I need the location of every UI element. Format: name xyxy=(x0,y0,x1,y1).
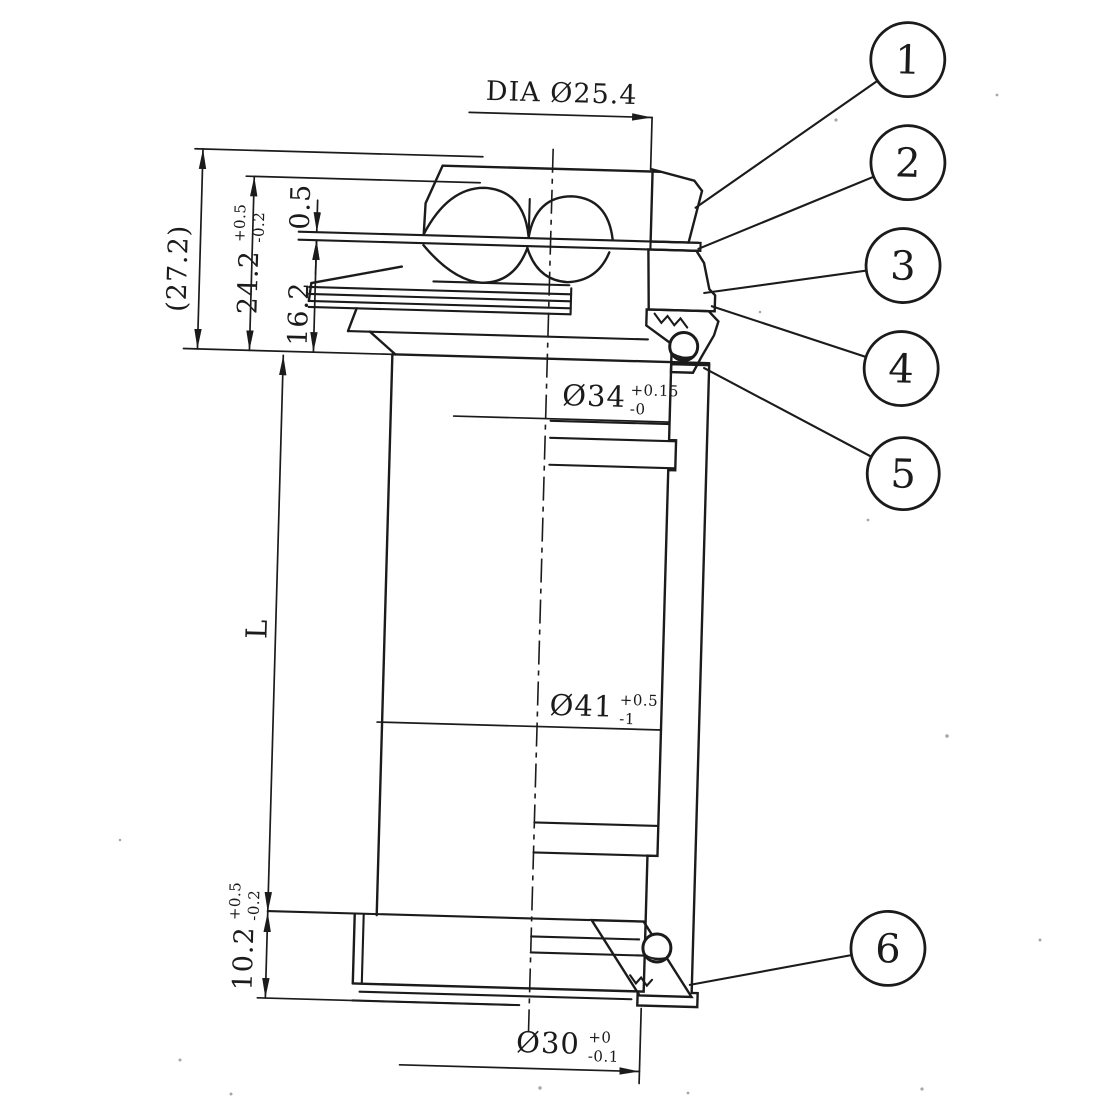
dim-bore-30-value: Ø30 xyxy=(516,1025,581,1061)
dim-bore-34-tol-plus: +0.15 xyxy=(630,381,679,400)
dim-bore-30-tol-plus: +0 xyxy=(588,1028,612,1047)
callout-balloon-4: 4 xyxy=(863,331,939,407)
dim-washer-0-5: 0.5 xyxy=(284,183,318,274)
bottom-cup-section xyxy=(590,920,694,997)
centerline xyxy=(528,149,553,1033)
hex-dome-facet-right xyxy=(529,195,614,239)
adjusting-race-flange xyxy=(307,264,649,361)
dim-dia-label: DIA Ø25.4 xyxy=(485,76,637,111)
callout-balloon-5: 5 xyxy=(866,437,940,511)
bore-step-lines xyxy=(534,421,677,856)
dim-overall-27-2: (27.2) xyxy=(160,148,482,357)
callout-number-5: 5 xyxy=(890,451,917,498)
callout-balloon-2: 2 xyxy=(870,125,946,201)
callout-number-3: 3 xyxy=(890,243,917,290)
dim-upper-stack-tol-minus: -0.2 xyxy=(249,211,268,242)
callout-balloon-1: 1 xyxy=(870,22,946,98)
dim-bore-34-value: Ø34 xyxy=(562,378,627,414)
hex-dome-facet-left xyxy=(424,186,530,237)
callout-number-6: 6 xyxy=(875,926,902,973)
dim-bore-30-tol-minus: -0.1 xyxy=(588,1047,619,1066)
dim-upper-stack-tol-plus: +0.5 xyxy=(230,203,249,242)
lower-bearing xyxy=(630,933,671,986)
lock-washer-lines xyxy=(299,232,699,251)
dim-upper-stack-24-2: 24.2 +0.5 -0.2 xyxy=(227,176,480,357)
dim-lower-stack-value: 10.2 xyxy=(228,926,261,991)
dim-length-label: L xyxy=(239,618,274,639)
locknut-section xyxy=(651,170,703,243)
dim-bore-30: Ø30 +0 -0.1 xyxy=(399,1002,641,1084)
dim-lower-stack-tol-minus: -0.2 xyxy=(245,889,264,920)
dim-length-L: L xyxy=(232,354,284,912)
callout-leaders xyxy=(674,54,915,991)
callout-balloon-3: 3 xyxy=(865,228,941,304)
bottom-race-lines xyxy=(267,911,648,956)
callout-number-1: 1 xyxy=(894,37,921,84)
callout-balloon-6: 6 xyxy=(850,910,926,986)
dim-bore-41-value: Ø41 xyxy=(549,688,614,724)
head-tube-outside-view xyxy=(352,354,709,1010)
callout-number-4: 4 xyxy=(888,346,915,393)
dim-dia-25-4: DIA Ø25.4 xyxy=(468,75,653,169)
callout-number-2: 2 xyxy=(895,140,922,187)
threaded-race-section xyxy=(647,249,717,311)
dim-upper-stack-value: 24.2 xyxy=(232,250,265,315)
dim-upper-race-label: 16.2 xyxy=(283,281,316,346)
locknut-outside-view xyxy=(424,165,661,241)
upper-bearing-retainer xyxy=(654,314,687,328)
upper-bearing xyxy=(653,314,698,361)
dim-bore-41-tol-plus: +0.5 xyxy=(620,691,659,710)
dim-bore-41-tol-minus: -1 xyxy=(619,710,635,728)
dim-washer-label: 0.5 xyxy=(285,183,317,230)
scanned-drawing-sheet: DIA Ø25.4 (27.2) 24.2 +0.5 -0.2 0.5 xyxy=(0,0,1100,1100)
hex-lower-chamfer xyxy=(422,245,609,286)
dim-bore-34-tol-minus: -0 xyxy=(630,400,646,418)
dim-bore-41: Ø41 +0.5 -1 xyxy=(377,683,662,730)
headset-section-drawing: DIA Ø25.4 (27.2) 24.2 +0.5 -0.2 0.5 xyxy=(0,0,1100,1100)
dim-bore-34: Ø34 +0.15 -0 xyxy=(454,375,680,422)
head-tube-wall-section xyxy=(637,364,715,1007)
dim-overall-label: (27.2) xyxy=(161,224,194,312)
dim-lower-stack-tol-plus: +0.5 xyxy=(226,881,245,920)
